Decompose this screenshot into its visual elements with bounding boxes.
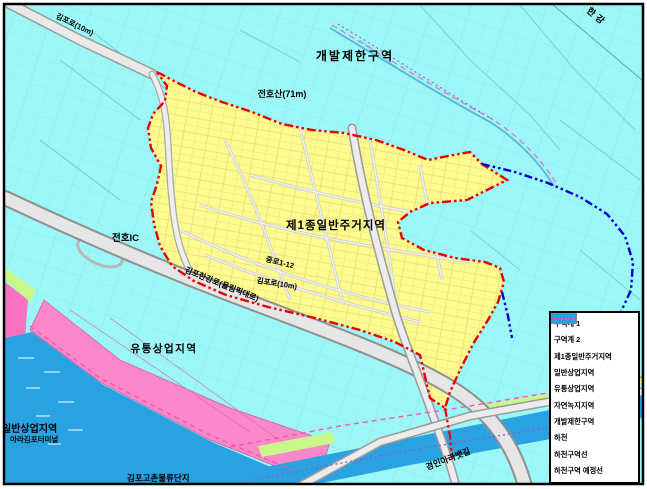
ara-terminal-label: 아라김포터미널 <box>10 434 58 444</box>
legend-label: 구역계 2 <box>554 335 580 345</box>
legend-row: 일반상업지역 <box>554 366 636 381</box>
river-zone-planned-line-swatch-icon <box>551 313 577 324</box>
legend-label: 제1종일반주거지역 <box>554 352 612 362</box>
legend-row: 개발제한구역 <box>554 414 636 429</box>
mountain-label: 전호산(71m) <box>258 88 307 99</box>
residential-zone-label: 제1종일반주거지역 <box>286 218 386 232</box>
interchange-label: 전호IC <box>112 232 139 244</box>
general-commercial-label: 일반상업지역 <box>2 422 57 435</box>
legend-label: 개발제한구역 <box>554 417 594 427</box>
legend-row: 하천구역 예정선 <box>554 463 636 478</box>
legend-box: 구역계 1 구역계 2 제1종일반주거지역 일반상업지역 유통상업지역 자연녹지… <box>549 311 640 484</box>
zoning-map-page: 한강 개발제한구역 전호산(71m) 제1종일반주거지역 전호IC 김포한강로(… <box>0 0 647 489</box>
legend-label: 하천구역선 <box>554 450 588 460</box>
distribution-commercial-label: 유통상업지역 <box>131 342 198 355</box>
legend-label: 자연녹지지역 <box>554 401 594 411</box>
legend-label: 하천구역 예정선 <box>554 466 603 476</box>
legend-row: 제1종일반주거지역 <box>554 349 636 364</box>
legend-row: 유통상업지역 <box>554 382 636 397</box>
legend-row: 하천구역선 <box>554 447 636 462</box>
legend-label: 하천 <box>554 433 567 443</box>
legend-row: 구역계 2 <box>554 333 636 348</box>
legend-row: 자연녹지지역 <box>554 398 636 413</box>
logistics-complex-label: 김포고촌물류단지 <box>127 473 190 483</box>
legend-label: 유통상업지역 <box>554 384 594 394</box>
greenbelt-label: 개발제한구역 <box>316 48 394 63</box>
legend-label: 일반상업지역 <box>554 368 594 378</box>
legend-row: 하천 <box>554 431 636 446</box>
